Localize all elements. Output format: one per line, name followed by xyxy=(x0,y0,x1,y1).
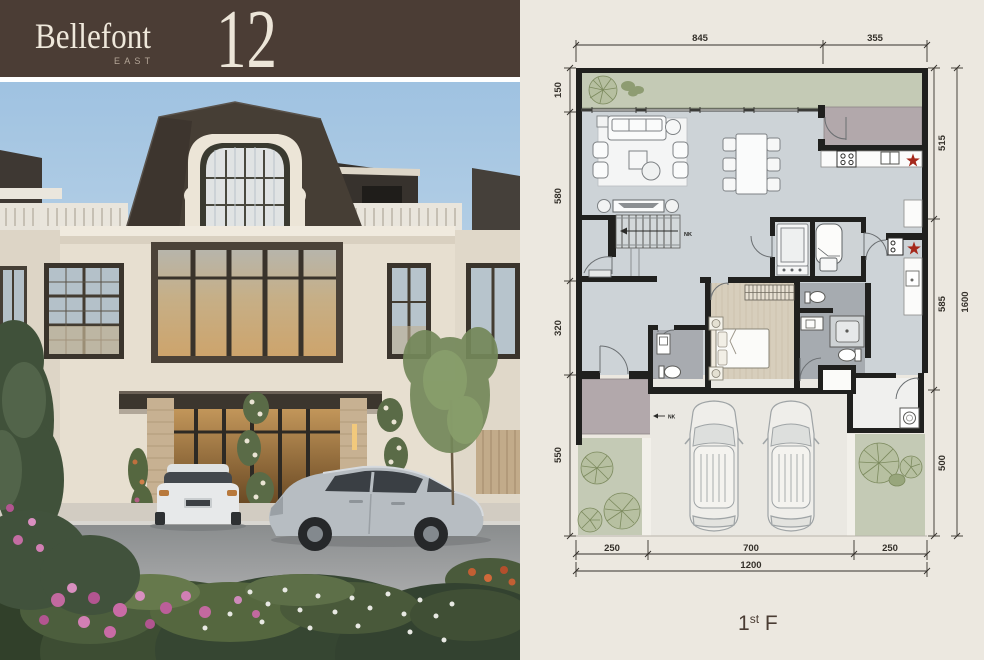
svg-text:150: 150 xyxy=(553,82,564,98)
svg-text:12: 12 xyxy=(216,0,277,86)
svg-text:250: 250 xyxy=(604,543,620,554)
svg-text:845: 845 xyxy=(692,33,709,44)
svg-text:515: 515 xyxy=(937,134,948,151)
svg-text:580: 580 xyxy=(553,188,564,204)
svg-text:Bellefont: Bellefont xyxy=(35,16,151,56)
svg-text:1600: 1600 xyxy=(960,291,971,312)
svg-text:585: 585 xyxy=(937,295,948,312)
svg-text:320: 320 xyxy=(553,320,564,336)
svg-text:700: 700 xyxy=(743,543,759,554)
svg-text:1200: 1200 xyxy=(740,560,761,571)
svg-text:NK: NK xyxy=(668,415,676,421)
svg-text:550: 550 xyxy=(553,447,564,463)
svg-text:250: 250 xyxy=(882,543,898,554)
svg-text:355: 355 xyxy=(867,33,884,44)
svg-text:500: 500 xyxy=(937,455,948,471)
svg-text:EAST: EAST xyxy=(114,56,154,66)
svg-text:NK: NK xyxy=(684,232,692,238)
